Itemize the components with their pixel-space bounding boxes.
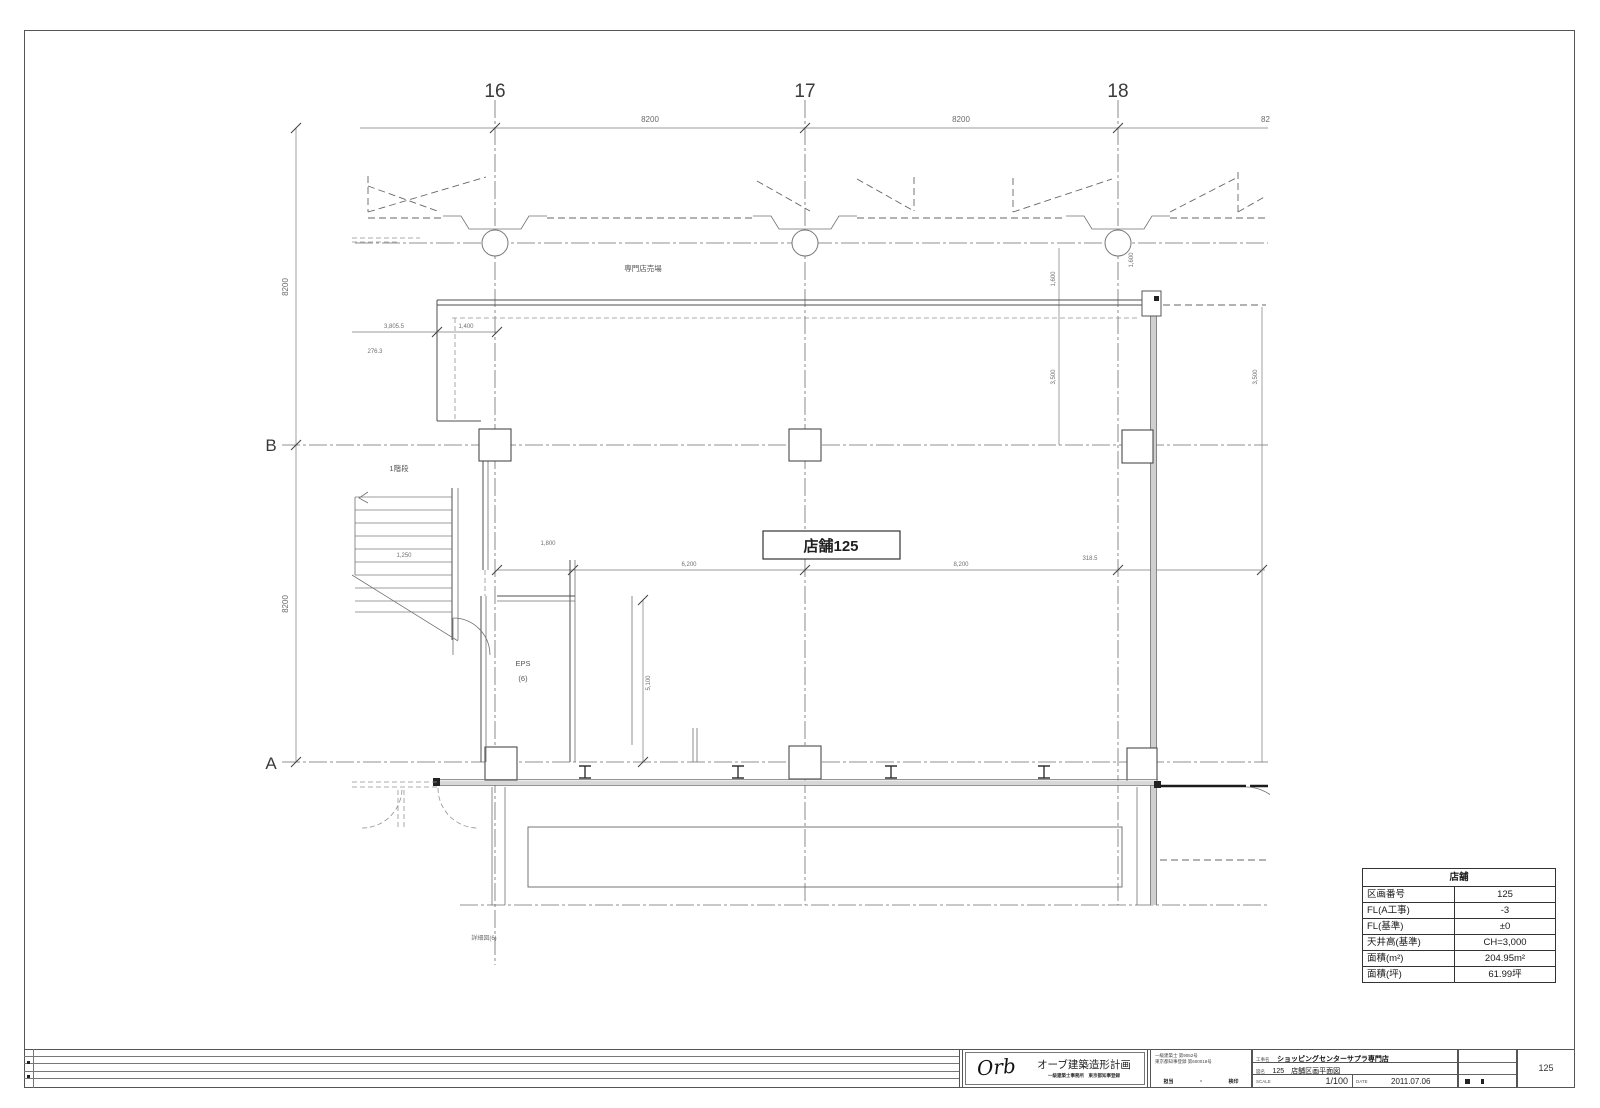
lower-zone — [492, 787, 1137, 905]
stamp-mark-icon — [1465, 1079, 1470, 1084]
row-label: FL(基準) — [1363, 919, 1455, 934]
sheet-number-block: 125 — [1517, 1049, 1575, 1088]
dim-label: 8200 — [281, 595, 290, 613]
dim-label: 276.3 — [367, 349, 383, 355]
revision-row — [24, 1064, 959, 1072]
dim-label: 1,400 — [458, 324, 474, 330]
drawing-sheet: 16 17 18 B A — [0, 0, 1600, 1108]
row-label: 面積(坪) — [1363, 967, 1455, 982]
firm-logo: Orb — [976, 1054, 1016, 1081]
dim-label: 1,250 — [396, 553, 412, 559]
revision-divider — [33, 1049, 34, 1088]
structural-columns — [479, 429, 1157, 783]
revision-row — [24, 1079, 959, 1087]
drawing-info-block: 工事名 ショッピングセンターサプラ専門店 図名 125 店舗区画平面図 SCAL… — [1252, 1049, 1458, 1088]
dim-label: 3,500 — [1253, 369, 1259, 385]
revision-mark-icon — [27, 1061, 30, 1064]
grid-label-18: 18 — [1107, 81, 1128, 102]
storefront-line — [433, 766, 1288, 829]
table-row: 天井高(基準) CH=3,000 — [1363, 935, 1555, 951]
revision-row — [24, 1049, 959, 1057]
stamp-mark-icon — [1481, 1079, 1484, 1084]
dim-label: 6,200 — [681, 562, 697, 568]
stamp-separator: ・ — [1198, 1078, 1203, 1085]
dim-label: 8200 — [1261, 115, 1279, 124]
sheet-number: 125 — [1518, 1063, 1574, 1073]
scale-value: 1/100 — [1325, 1076, 1348, 1086]
row-value: 204.95m² — [1455, 951, 1555, 966]
info-table-title: 店舗 — [1363, 869, 1555, 887]
revision-row — [24, 1072, 959, 1080]
dim-label: 8,200 — [953, 562, 969, 568]
row-label: FL(A工事) — [1363, 903, 1455, 918]
date-value: 2011.07.06 — [1391, 1077, 1430, 1086]
row-value: -3 — [1455, 903, 1555, 918]
firm-logo-block: Orb オーブ建築造形計画 一級建築士事務所 東京都知事登録 — [962, 1049, 1148, 1088]
row-label: 天井高(基準) — [1363, 935, 1455, 950]
stair — [352, 488, 458, 641]
grid-label-A: A — [265, 754, 277, 773]
row-value: 61.99坪 — [1455, 967, 1555, 982]
row-value: ±0 — [1455, 919, 1555, 934]
floor-plan-drawing: 16 17 18 B A — [0, 0, 1600, 1108]
dim-label: 1,600 — [1129, 252, 1135, 268]
eps-label: EPS — [515, 659, 530, 668]
store-tag: 店舗125 — [763, 531, 900, 559]
detail-note-label: 詳細図(6) — [471, 934, 496, 942]
firm-subtitle: 一級建築士事務所 東京都知事登録 — [1025, 1073, 1143, 1079]
store-walls — [437, 291, 1266, 905]
dim-label: 8200 — [952, 115, 970, 124]
dim-label: 318.5 — [1082, 556, 1098, 562]
table-row: FL(A工事) -3 — [1363, 903, 1555, 919]
approval-rule — [1459, 1074, 1516, 1075]
grid-label-17: 17 — [794, 81, 815, 102]
revision-row — [24, 1057, 959, 1065]
stamp-label: 検印 — [1228, 1078, 1238, 1085]
dim-label: 1,600 — [1051, 271, 1057, 287]
eps-count-label: (6) — [518, 674, 528, 683]
row-value: CH=3,000 — [1455, 935, 1555, 950]
store-tag-label: 店舗125 — [803, 537, 858, 555]
grid-label-B: B — [265, 436, 276, 455]
row-label: 面積(m²) — [1363, 951, 1455, 966]
revision-mark-icon — [27, 1075, 30, 1078]
scale-label: SCALE — [1256, 1079, 1271, 1084]
approval-rule — [1459, 1062, 1516, 1063]
sheet-name-label: 図名 — [1253, 1066, 1268, 1074]
table-row: 区画番号 125 — [1363, 887, 1555, 903]
row-value: 125 — [1455, 887, 1555, 902]
project-label: 工事名 — [1253, 1053, 1273, 1063]
grid-label-16: 16 — [484, 81, 505, 102]
table-row: FL(基準) ±0 — [1363, 919, 1555, 935]
dim-label: 5,100 — [646, 675, 652, 691]
row-label: 区画番号 — [1363, 887, 1455, 902]
revision-table — [24, 1049, 960, 1088]
registration-stamp-block: 一級建築士 第9052号 東京都知事登録 第600018号 担当 ・ 検印 — [1150, 1049, 1252, 1088]
dim-label: 8200 — [641, 115, 659, 124]
double-door-dashed — [352, 782, 478, 830]
stamp-label: 担当 — [1163, 1078, 1173, 1085]
dim-label: 3,500 — [1051, 369, 1057, 385]
stair-label: 1階段 — [389, 463, 409, 473]
dim-label: 1,800 — [540, 541, 556, 547]
firm-name: オーブ建築造形計画 — [1025, 1057, 1143, 1072]
table-row: 面積(m²) 204.95m² — [1363, 951, 1555, 967]
dim-label: 3,805.5 — [384, 324, 405, 330]
floor-area-label: 専門店売場 — [624, 263, 662, 273]
dim-label: 8200 — [281, 278, 290, 296]
table-row: 面積(坪) 61.99坪 — [1363, 967, 1555, 982]
eps-room — [453, 560, 697, 762]
project-name: ショッピングセンターサプラ専門店 — [1277, 1056, 1389, 1063]
date-label: DATE — [1356, 1079, 1368, 1084]
approval-block — [1458, 1049, 1517, 1088]
store-info-table: 店舗 区画番号 125 FL(A工事) -3 FL(基準) ±0 天井高(基準)… — [1362, 868, 1556, 983]
registration-line: 東京都知事登録 第600018号 — [1155, 1059, 1212, 1065]
